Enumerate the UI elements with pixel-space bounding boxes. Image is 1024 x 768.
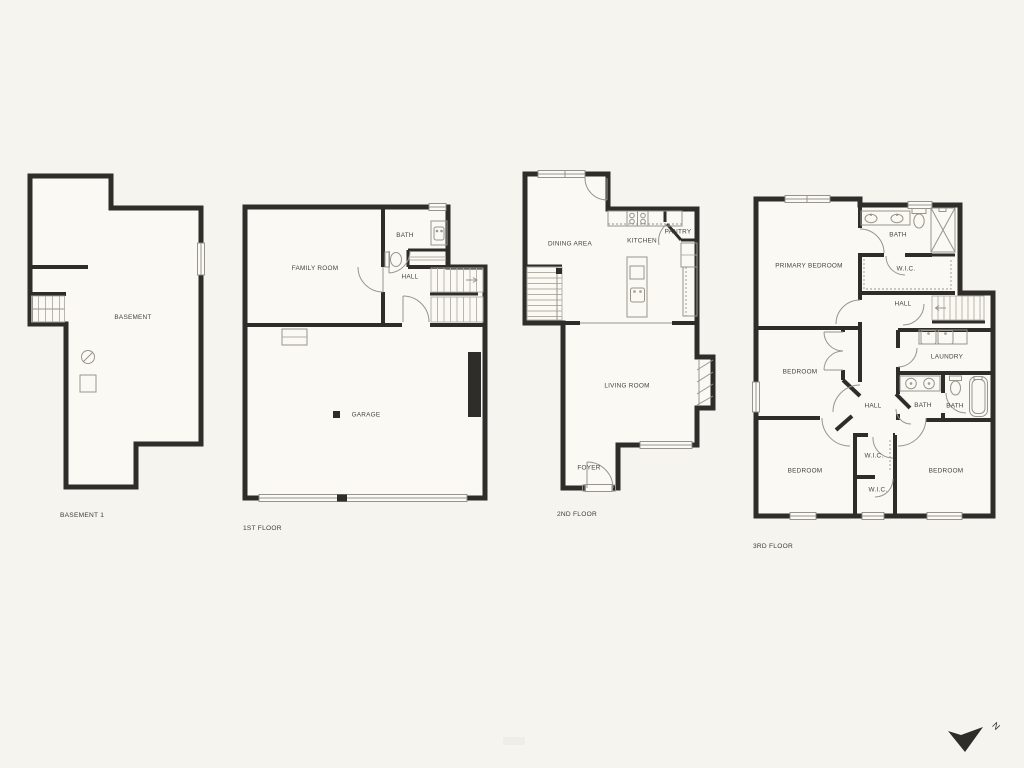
floor-label-second: 2ND FLOOR [557, 511, 597, 518]
room-label-hall-center: HALL [865, 403, 882, 410]
floor-label-first: 1ST FLOOR [243, 525, 282, 532]
basement-window [198, 243, 205, 275]
room-label-basement: BASEMENT [114, 314, 151, 321]
basement-outline [30, 176, 201, 487]
room-label-pantry: PANTRY [665, 229, 692, 236]
room-label-dining-area: DINING AREA [548, 241, 592, 248]
first-floor-outline [245, 207, 485, 498]
room-label-wic-top: W.I.C. [897, 266, 916, 273]
floor-label-basement: BASEMENT 1 [60, 512, 104, 519]
room-label-family-room: FAMILY ROOM [292, 265, 339, 272]
room-label-bedroom-bottom-left: BEDROOM [788, 468, 823, 475]
north-label: N [990, 720, 1002, 732]
floor-label-third: 3RD FLOOR [753, 543, 793, 550]
third-floor-plan: PRIMARY BEDROOM BATH W.I.C. HALL LAUNDRY… [753, 196, 994, 551]
room-label-bath-1st: BATH [396, 232, 414, 239]
room-label-wic-center: W.I.C. [865, 453, 884, 460]
room-label-primary-bedroom: PRIMARY BEDROOM [775, 263, 842, 270]
room-label-bath-tub: BATH [946, 403, 964, 410]
second-floor-outline [525, 174, 713, 488]
room-label-hall-upper: HALL [895, 301, 912, 308]
room-label-bath-hall: BATH [914, 402, 932, 409]
room-label-wic-lower: W.I.C. [869, 487, 888, 494]
room-label-living-room: LIVING ROOM [604, 383, 649, 390]
room-label-kitchen: KITCHEN [627, 238, 657, 245]
room-label-bedroom-mid: BEDROOM [783, 369, 818, 376]
room-label-bedroom-bottom-right: BEDROOM [929, 468, 964, 475]
room-label-laundry: LAUNDRY [931, 354, 964, 361]
floor-plan-sheet: BASEMENT BASEMENT 1 [0, 0, 1024, 768]
room-label-bath-top: BATH [889, 232, 907, 239]
room-label-hall-1st: HALL [402, 274, 419, 281]
basement-floor-plan: BASEMENT BASEMENT 1 [30, 176, 205, 519]
north-arrow-icon [948, 727, 983, 752]
first-floor-plan: FAMILY ROOM BATH HALL GARAGE 1ST FLOOR [243, 204, 485, 533]
north-arrow: N [948, 720, 1002, 752]
room-label-foyer: FOYER [577, 465, 600, 472]
room-label-garage: GARAGE [352, 412, 381, 419]
second-floor-plan: DINING AREA KITCHEN PANTRY LIVING ROOM F… [525, 171, 713, 519]
watermark [503, 737, 525, 745]
